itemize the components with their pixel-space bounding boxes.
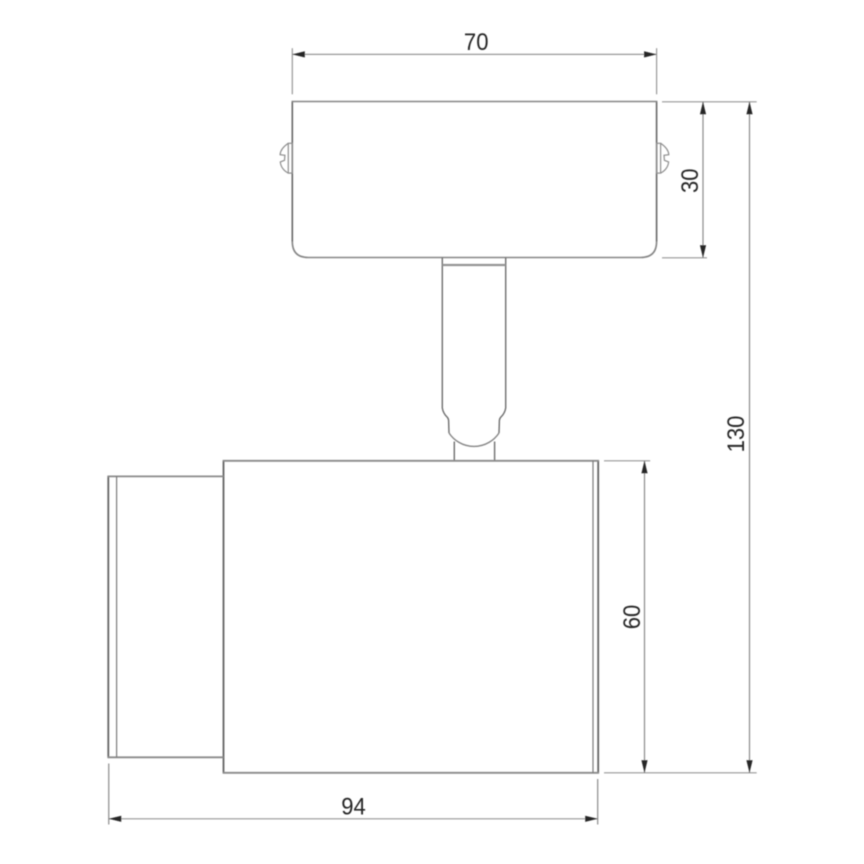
svg-text:60: 60 (618, 605, 645, 630)
svg-text:94: 94 (341, 792, 366, 819)
svg-text:70: 70 (464, 28, 489, 55)
svg-text:130: 130 (722, 416, 749, 453)
svg-text:30: 30 (676, 168, 703, 193)
